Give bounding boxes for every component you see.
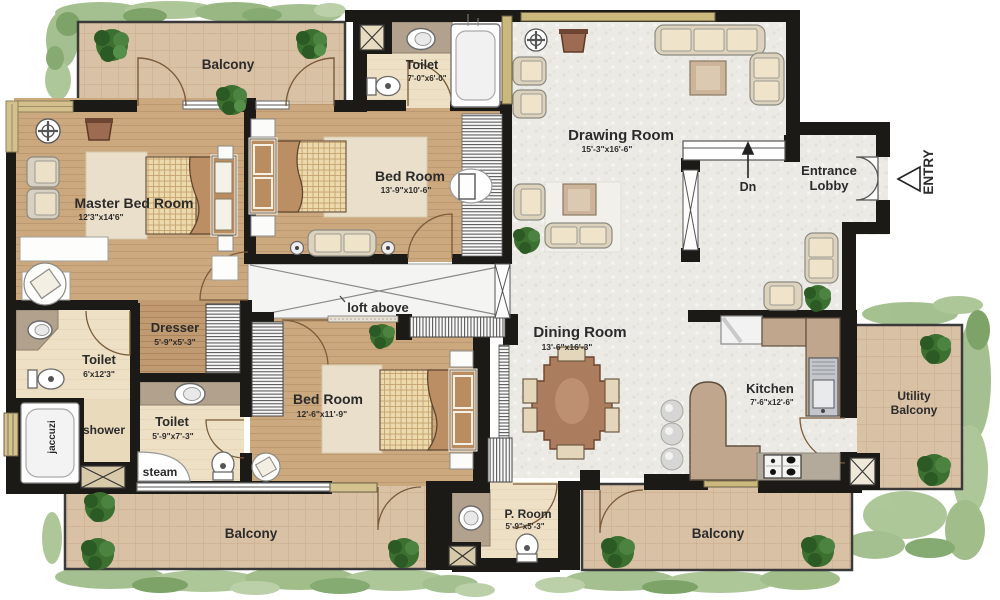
svg-text:Balcony: Balcony — [225, 526, 278, 541]
svg-text:Bed Room: Bed Room — [375, 168, 445, 184]
svg-text:Bed Room: Bed Room — [293, 391, 363, 407]
svg-text:7'-6"x12'-6": 7'-6"x12'-6" — [750, 398, 794, 407]
svg-text:Toilet: Toilet — [406, 58, 439, 72]
svg-text:6'x12'3": 6'x12'3" — [83, 369, 115, 379]
svg-text:Toilet: Toilet — [155, 414, 189, 429]
svg-text:P. Room: P. Room — [504, 507, 551, 521]
svg-text:5'-9"x5'-3": 5'-9"x5'-3" — [506, 522, 545, 531]
svg-text:13'-6"x16'-3": 13'-6"x16'-3" — [542, 342, 593, 352]
svg-text:loft above: loft above — [347, 300, 408, 315]
svg-text:Kitchen: Kitchen — [746, 381, 794, 396]
svg-text:Dining Room: Dining Room — [533, 324, 626, 341]
svg-text:steam: steam — [143, 465, 178, 479]
svg-text:Balcony: Balcony — [692, 526, 745, 541]
svg-text:Master Bed Room: Master Bed Room — [74, 195, 193, 211]
svg-text:Toilet: Toilet — [82, 352, 116, 367]
svg-text:Drawing Room: Drawing Room — [568, 127, 674, 144]
svg-text:5'-9"x5'-3": 5'-9"x5'-3" — [154, 337, 195, 347]
svg-text:ENTRY: ENTRY — [921, 149, 936, 194]
svg-text:Utility: Utility — [897, 389, 931, 403]
svg-text:13'-9"x10'-6": 13'-9"x10'-6" — [381, 185, 432, 195]
svg-text:Lobby: Lobby — [810, 178, 850, 193]
svg-text:Dn: Dn — [740, 180, 757, 194]
svg-text:7'-0"x6'-0": 7'-0"x6'-0" — [408, 74, 447, 83]
svg-text:jaccuzi: jaccuzi — [47, 420, 58, 455]
svg-text:12'3"x14'6": 12'3"x14'6" — [78, 212, 123, 222]
svg-text:12'-6"x11'-9": 12'-6"x11'-9" — [297, 409, 347, 419]
svg-text:5'-9"x7'-3": 5'-9"x7'-3" — [152, 431, 193, 441]
svg-text:shower: shower — [83, 423, 125, 437]
svg-text:15'-3"x16'-6": 15'-3"x16'-6" — [582, 144, 633, 154]
svg-text:Balcony: Balcony — [202, 57, 255, 72]
svg-text:Entrance: Entrance — [801, 163, 857, 178]
svg-text:Balcony: Balcony — [891, 403, 938, 417]
svg-text:Dresser: Dresser — [151, 320, 199, 335]
